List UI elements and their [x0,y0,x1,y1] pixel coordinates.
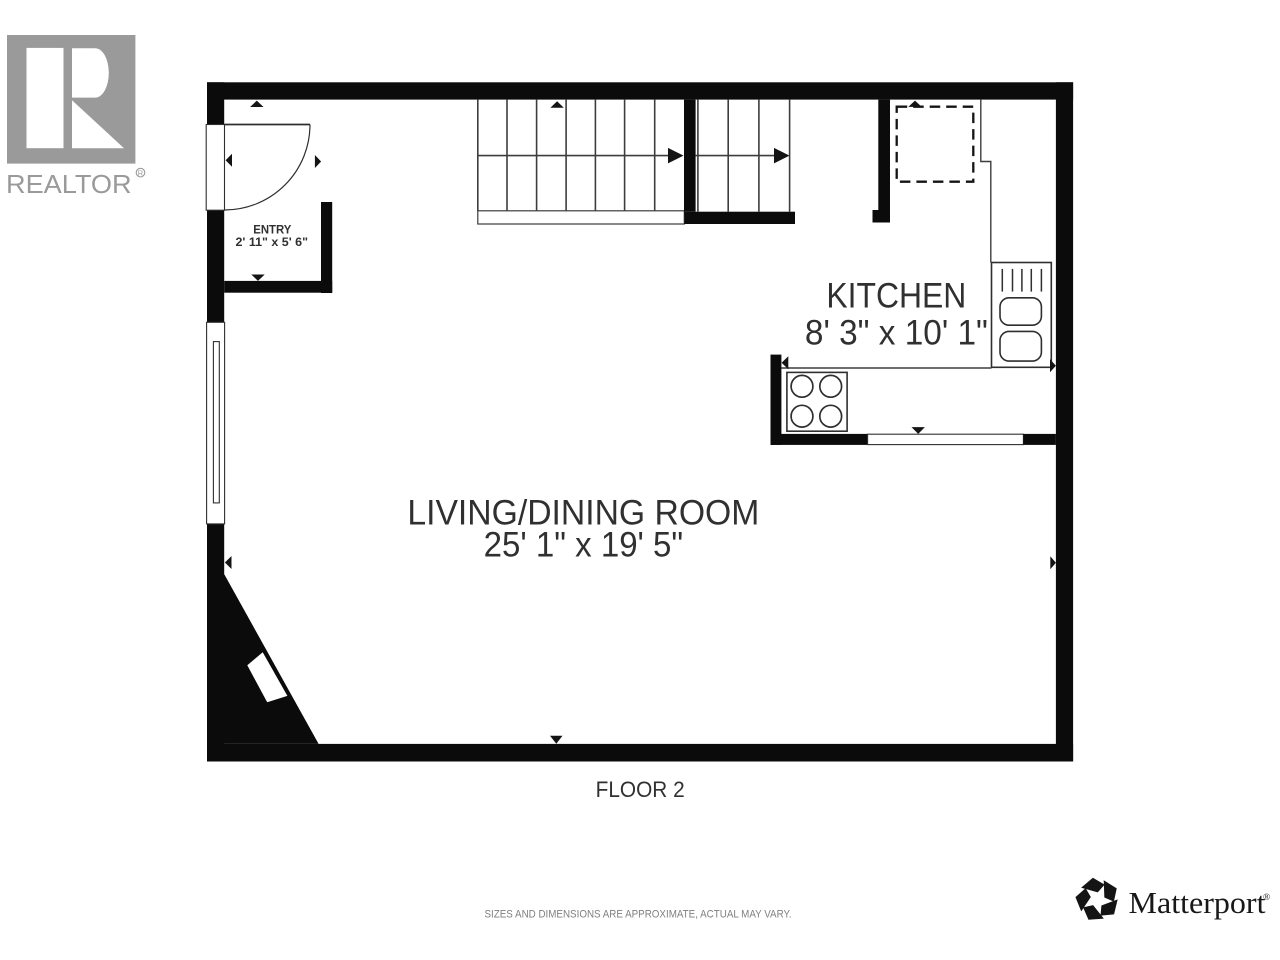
svg-text:FLOOR 2: FLOOR 2 [596,777,685,802]
svg-text:R: R [138,168,144,177]
svg-text:2' 11" x 5' 6": 2' 11" x 5' 6" [236,235,309,249]
svg-text:8' 3" x 10' 1": 8' 3" x 10' 1" [805,314,988,353]
svg-text:SIZES AND DIMENSIONS ARE APPRO: SIZES AND DIMENSIONS ARE APPROXIMATE, AC… [485,909,792,921]
svg-text:REALTOR: REALTOR [6,171,132,199]
svg-text:Matterport: Matterport [1129,885,1266,920]
svg-text:25' 1" x 19' 5": 25' 1" x 19' 5" [484,526,684,565]
svg-text:®: ® [1263,892,1270,903]
svg-text:KITCHEN: KITCHEN [826,277,966,316]
